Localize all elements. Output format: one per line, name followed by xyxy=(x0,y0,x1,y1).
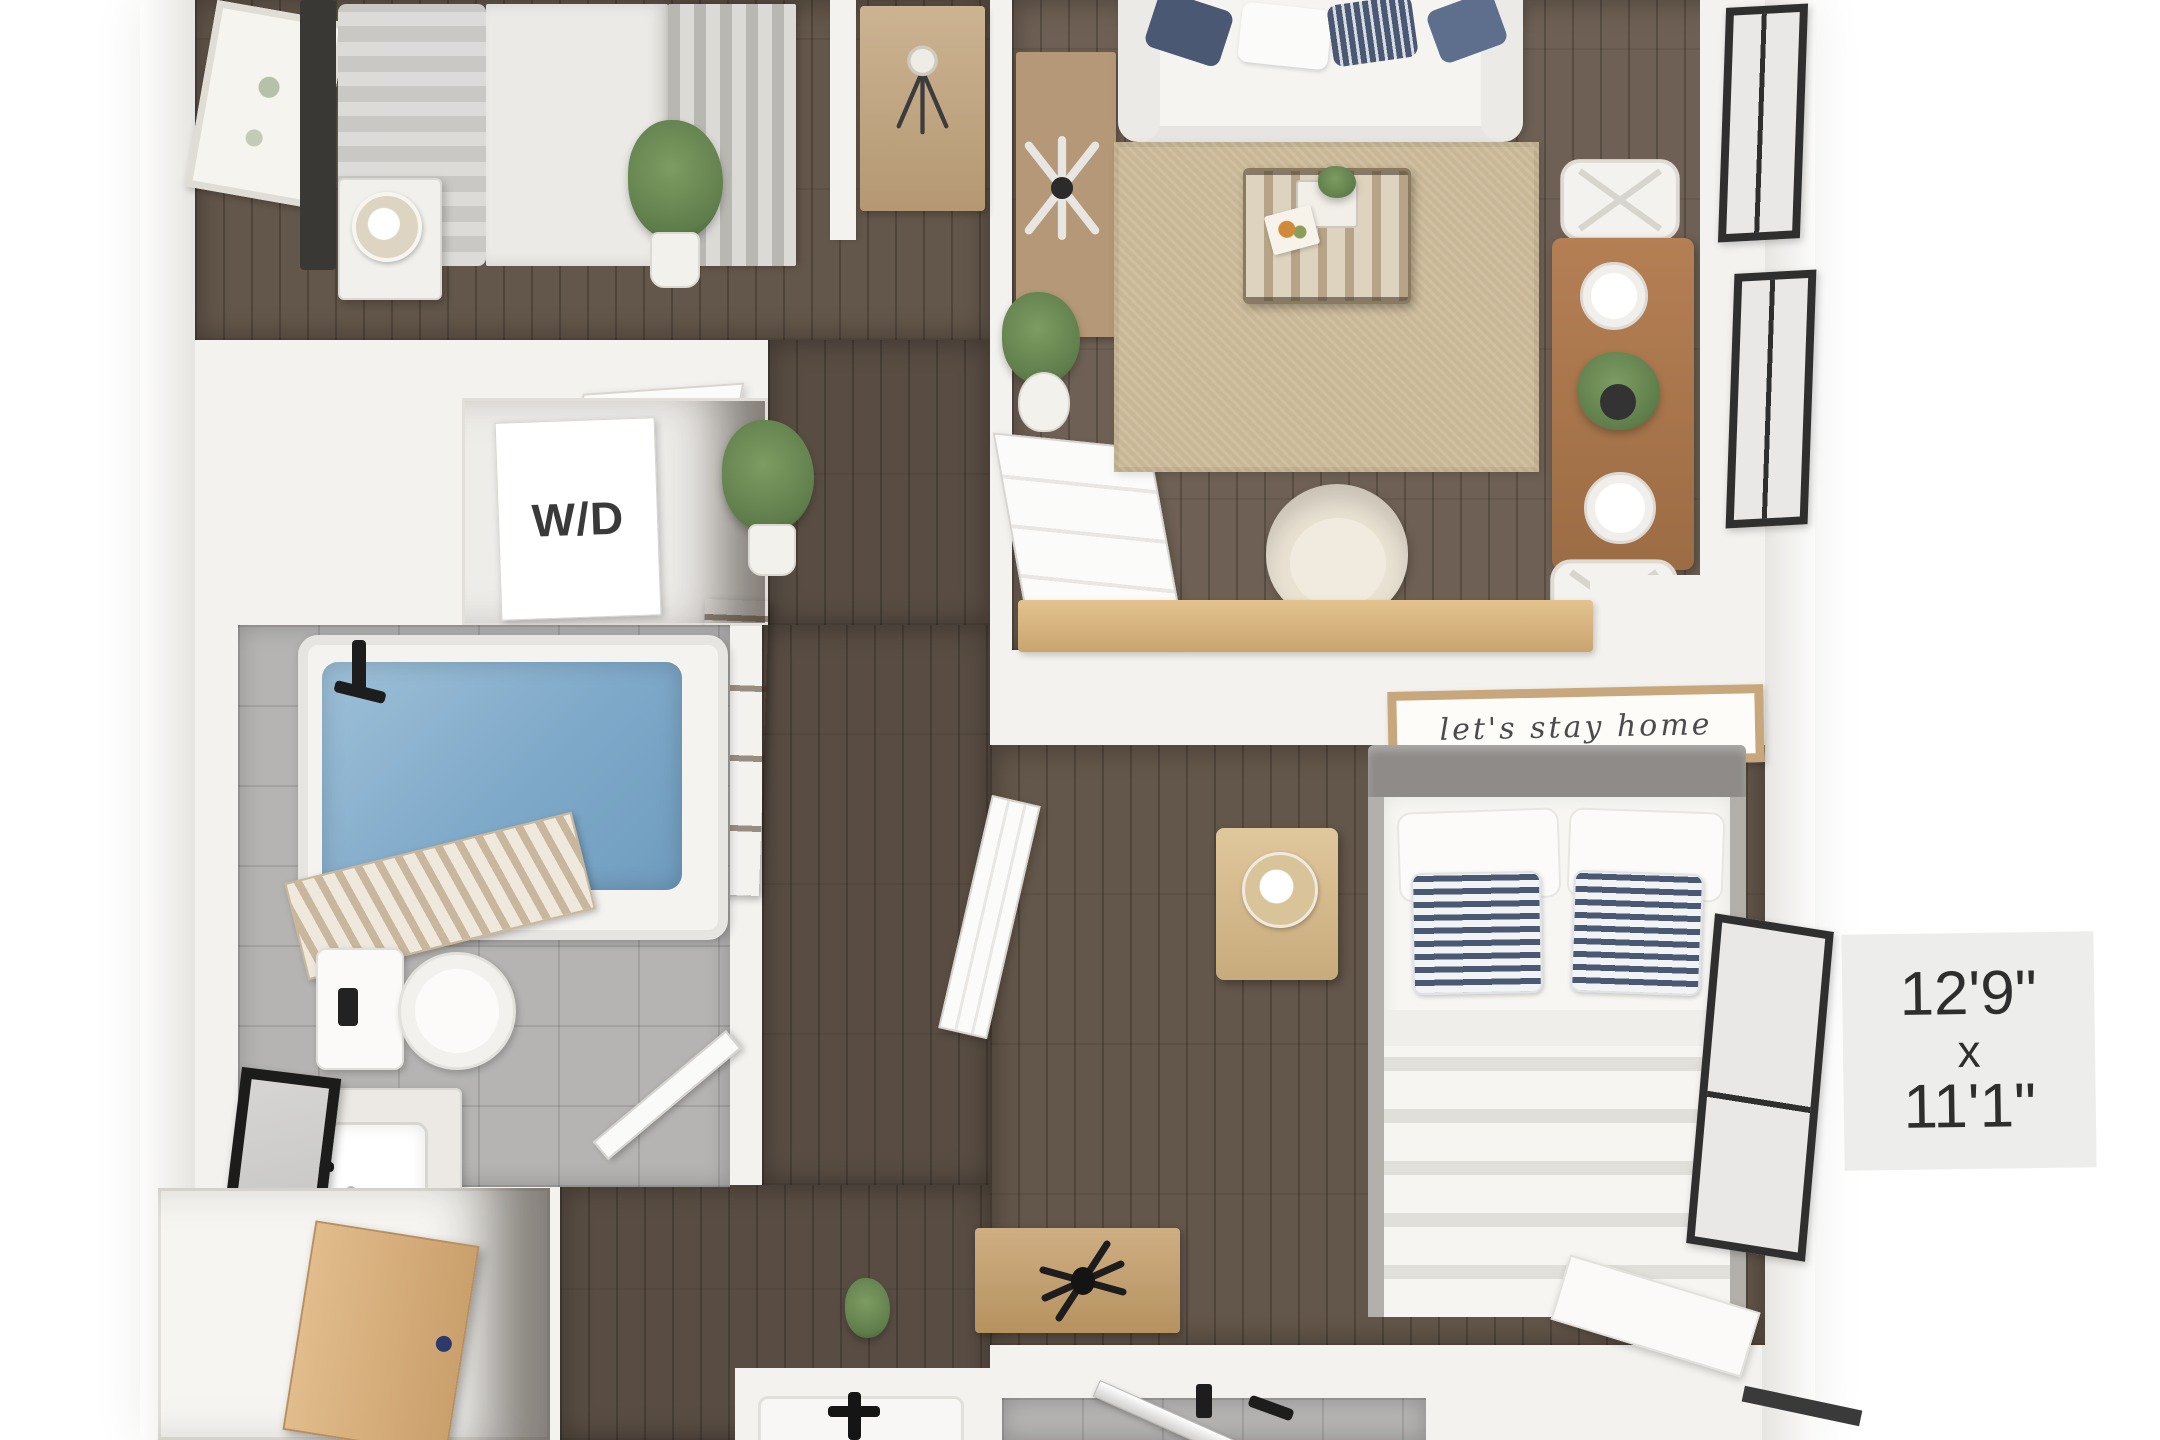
living-window-upper xyxy=(1718,4,1808,243)
desk-fan-icon xyxy=(1028,1232,1138,1332)
desk-chair-icon xyxy=(1016,128,1108,248)
wall-sign-text: let's stay home xyxy=(1439,707,1713,748)
bedroom1-nook-divider-wall xyxy=(830,0,856,240)
bedroom2-plant-sprig xyxy=(845,1278,890,1338)
fiddle-leaf-pot xyxy=(748,524,796,576)
washer-dryer-box: W/D xyxy=(495,417,662,620)
bed2-striped-pillow-right xyxy=(1570,870,1704,996)
washer-dryer-label: W/D xyxy=(531,490,625,547)
barrel-chair-seat xyxy=(1290,518,1386,608)
dinner-plate-top xyxy=(1580,262,1648,330)
dinner-plate-bottom xyxy=(1584,472,1656,544)
closet-wood-door xyxy=(282,1220,479,1440)
coffee-table-flowers xyxy=(1318,166,1356,198)
room-dimension-label: 12'9" x 11'1" xyxy=(1841,931,2096,1170)
lamp-bedroom2 xyxy=(1242,852,1318,928)
bed2-headboard xyxy=(1368,745,1746,797)
closet-door-knob xyxy=(435,1335,453,1353)
shower-fixture xyxy=(1196,1384,1212,1418)
toilet-flush-handle xyxy=(338,988,358,1026)
living-window-lower xyxy=(1726,270,1817,529)
vase-plant-pot xyxy=(1018,372,1070,432)
sofa-throw-white xyxy=(1237,1,1333,70)
ensuite-basin xyxy=(758,1396,964,1440)
fiddle-leaf-plant xyxy=(722,420,814,532)
dimension-separator: x xyxy=(1957,1028,1981,1074)
dining-centerpiece-vase xyxy=(1600,384,1636,420)
hallway-mid-floor xyxy=(762,625,990,1185)
palm-plant-pot xyxy=(650,232,700,288)
dimension-height: 11'1" xyxy=(1903,1073,2037,1142)
lamp-bedroom1 xyxy=(352,192,422,262)
half-wall-wood-cap xyxy=(1018,600,1593,652)
bed2-rail-left xyxy=(1368,797,1384,1317)
bed2-striped-duvet xyxy=(1384,1046,1730,1317)
bed2-sheet-fold xyxy=(1384,1010,1730,1049)
bed2-striped-pillow-left xyxy=(1411,871,1543,995)
basin-faucet-cross xyxy=(828,1406,880,1417)
floorplan-canvas: W/D xyxy=(0,0,2160,1440)
dining-chair-top xyxy=(1556,156,1684,244)
bed1-headboard xyxy=(300,0,336,270)
sofa-pillow-patterned xyxy=(1326,0,1419,68)
palm-plant xyxy=(628,120,723,240)
vase-plant xyxy=(1002,292,1080,384)
tripod-lamp-icon xyxy=(880,28,965,148)
toilet-tank xyxy=(316,948,404,1070)
dimension-width: 12'9" xyxy=(1899,960,2037,1029)
toilet-bowl xyxy=(398,952,516,1070)
